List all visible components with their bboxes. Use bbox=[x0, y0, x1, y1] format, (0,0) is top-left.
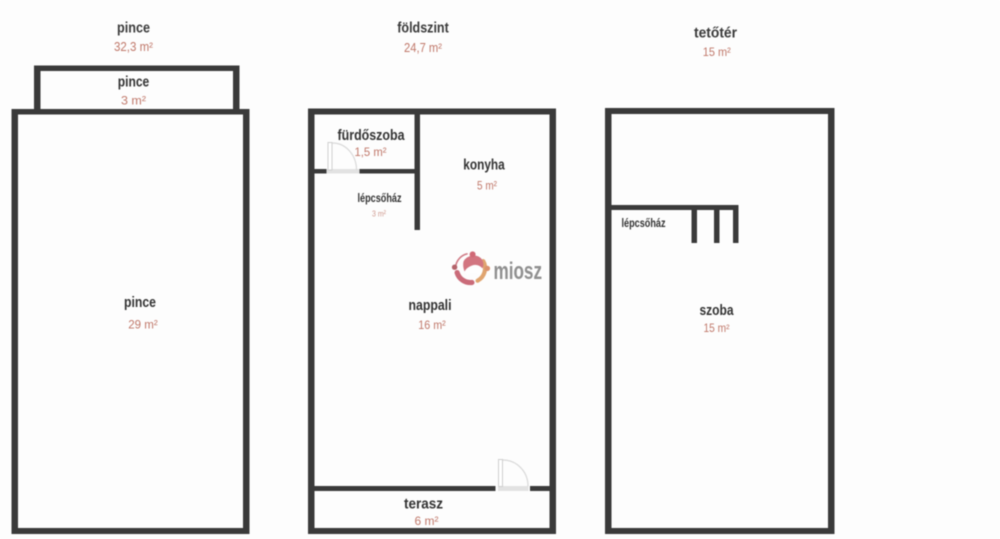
svg-text:terasz: terasz bbox=[404, 496, 443, 513]
svg-text:lépcsőház: lépcsőház bbox=[358, 191, 402, 205]
svg-text:földszint: földszint bbox=[397, 20, 449, 37]
svg-text:15 m²: 15 m² bbox=[704, 323, 730, 335]
svg-text:nappali: nappali bbox=[409, 297, 452, 314]
svg-text:pince: pince bbox=[124, 294, 156, 311]
svg-text:miosz: miosz bbox=[494, 258, 543, 285]
svg-text:32,3 m²: 32,3 m² bbox=[114, 40, 153, 54]
svg-text:16 m²: 16 m² bbox=[418, 318, 446, 332]
svg-text:3 m²: 3 m² bbox=[372, 209, 386, 219]
svg-text:tetőtér: tetőtér bbox=[694, 25, 737, 42]
svg-text:lépcsőház: lépcsőház bbox=[622, 216, 666, 230]
svg-text:29 m²: 29 m² bbox=[128, 318, 158, 332]
svg-text:3 m²: 3 m² bbox=[121, 94, 146, 108]
svg-text:szoba: szoba bbox=[700, 302, 735, 319]
svg-text:15 m²: 15 m² bbox=[703, 45, 731, 59]
svg-text:24,7 m²: 24,7 m² bbox=[404, 41, 442, 55]
svg-text:6 m²: 6 m² bbox=[415, 514, 439, 528]
svg-text:pince: pince bbox=[118, 74, 150, 91]
svg-text:1,5 m²: 1,5 m² bbox=[355, 145, 387, 159]
svg-text:5 m²: 5 m² bbox=[477, 179, 497, 193]
svg-text:pince: pince bbox=[117, 20, 150, 37]
svg-text:fürdőszoba: fürdőszoba bbox=[338, 127, 406, 144]
svg-text:konyha: konyha bbox=[463, 157, 505, 174]
